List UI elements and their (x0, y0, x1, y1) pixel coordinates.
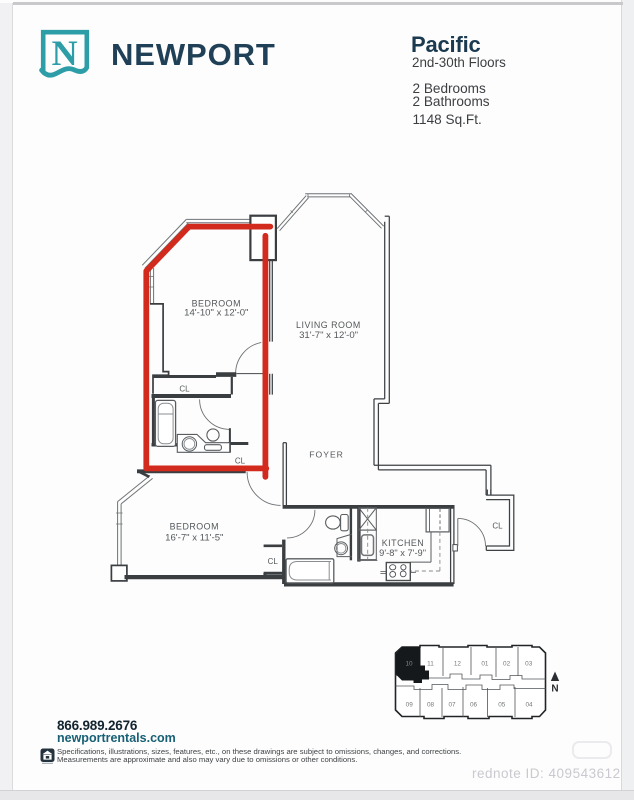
svg-text:FOYER: FOYER (309, 449, 344, 459)
svg-text:01: 01 (481, 661, 489, 668)
svg-text:14'-10" x 12'-0": 14'-10" x 12'-0" (184, 308, 248, 319)
svg-text:11: 11 (427, 661, 434, 668)
svg-text:CL: CL (179, 385, 190, 394)
svg-text:CL: CL (235, 457, 246, 466)
svg-text:9'-8" x 7'-9": 9'-8" x 7'-9" (379, 548, 426, 558)
svg-text:03: 03 (525, 661, 533, 668)
svg-text:31'-7" x 12'-0": 31'-7" x 12'-0" (299, 330, 358, 341)
svg-text:BEDROOM: BEDROOM (170, 522, 219, 532)
svg-text:CL: CL (268, 557, 279, 566)
svg-text:05: 05 (498, 702, 506, 709)
svg-text:N: N (551, 684, 558, 695)
svg-text:12: 12 (454, 661, 462, 668)
svg-text:KITCHEN: KITCHEN (382, 538, 424, 548)
svg-text:10: 10 (405, 661, 413, 668)
svg-text:09: 09 (406, 702, 414, 709)
svg-text:02: 02 (503, 661, 511, 668)
svg-text:08: 08 (427, 702, 435, 709)
svg-text:LIVING ROOM: LIVING ROOM (296, 320, 361, 330)
svg-text:16'-7" x 11'-5": 16'-7" x 11'-5" (165, 533, 223, 544)
svg-text:06: 06 (470, 702, 478, 709)
svg-text:CL: CL (492, 522, 503, 531)
svg-text:07: 07 (448, 702, 456, 709)
svg-text:04: 04 (525, 702, 533, 709)
